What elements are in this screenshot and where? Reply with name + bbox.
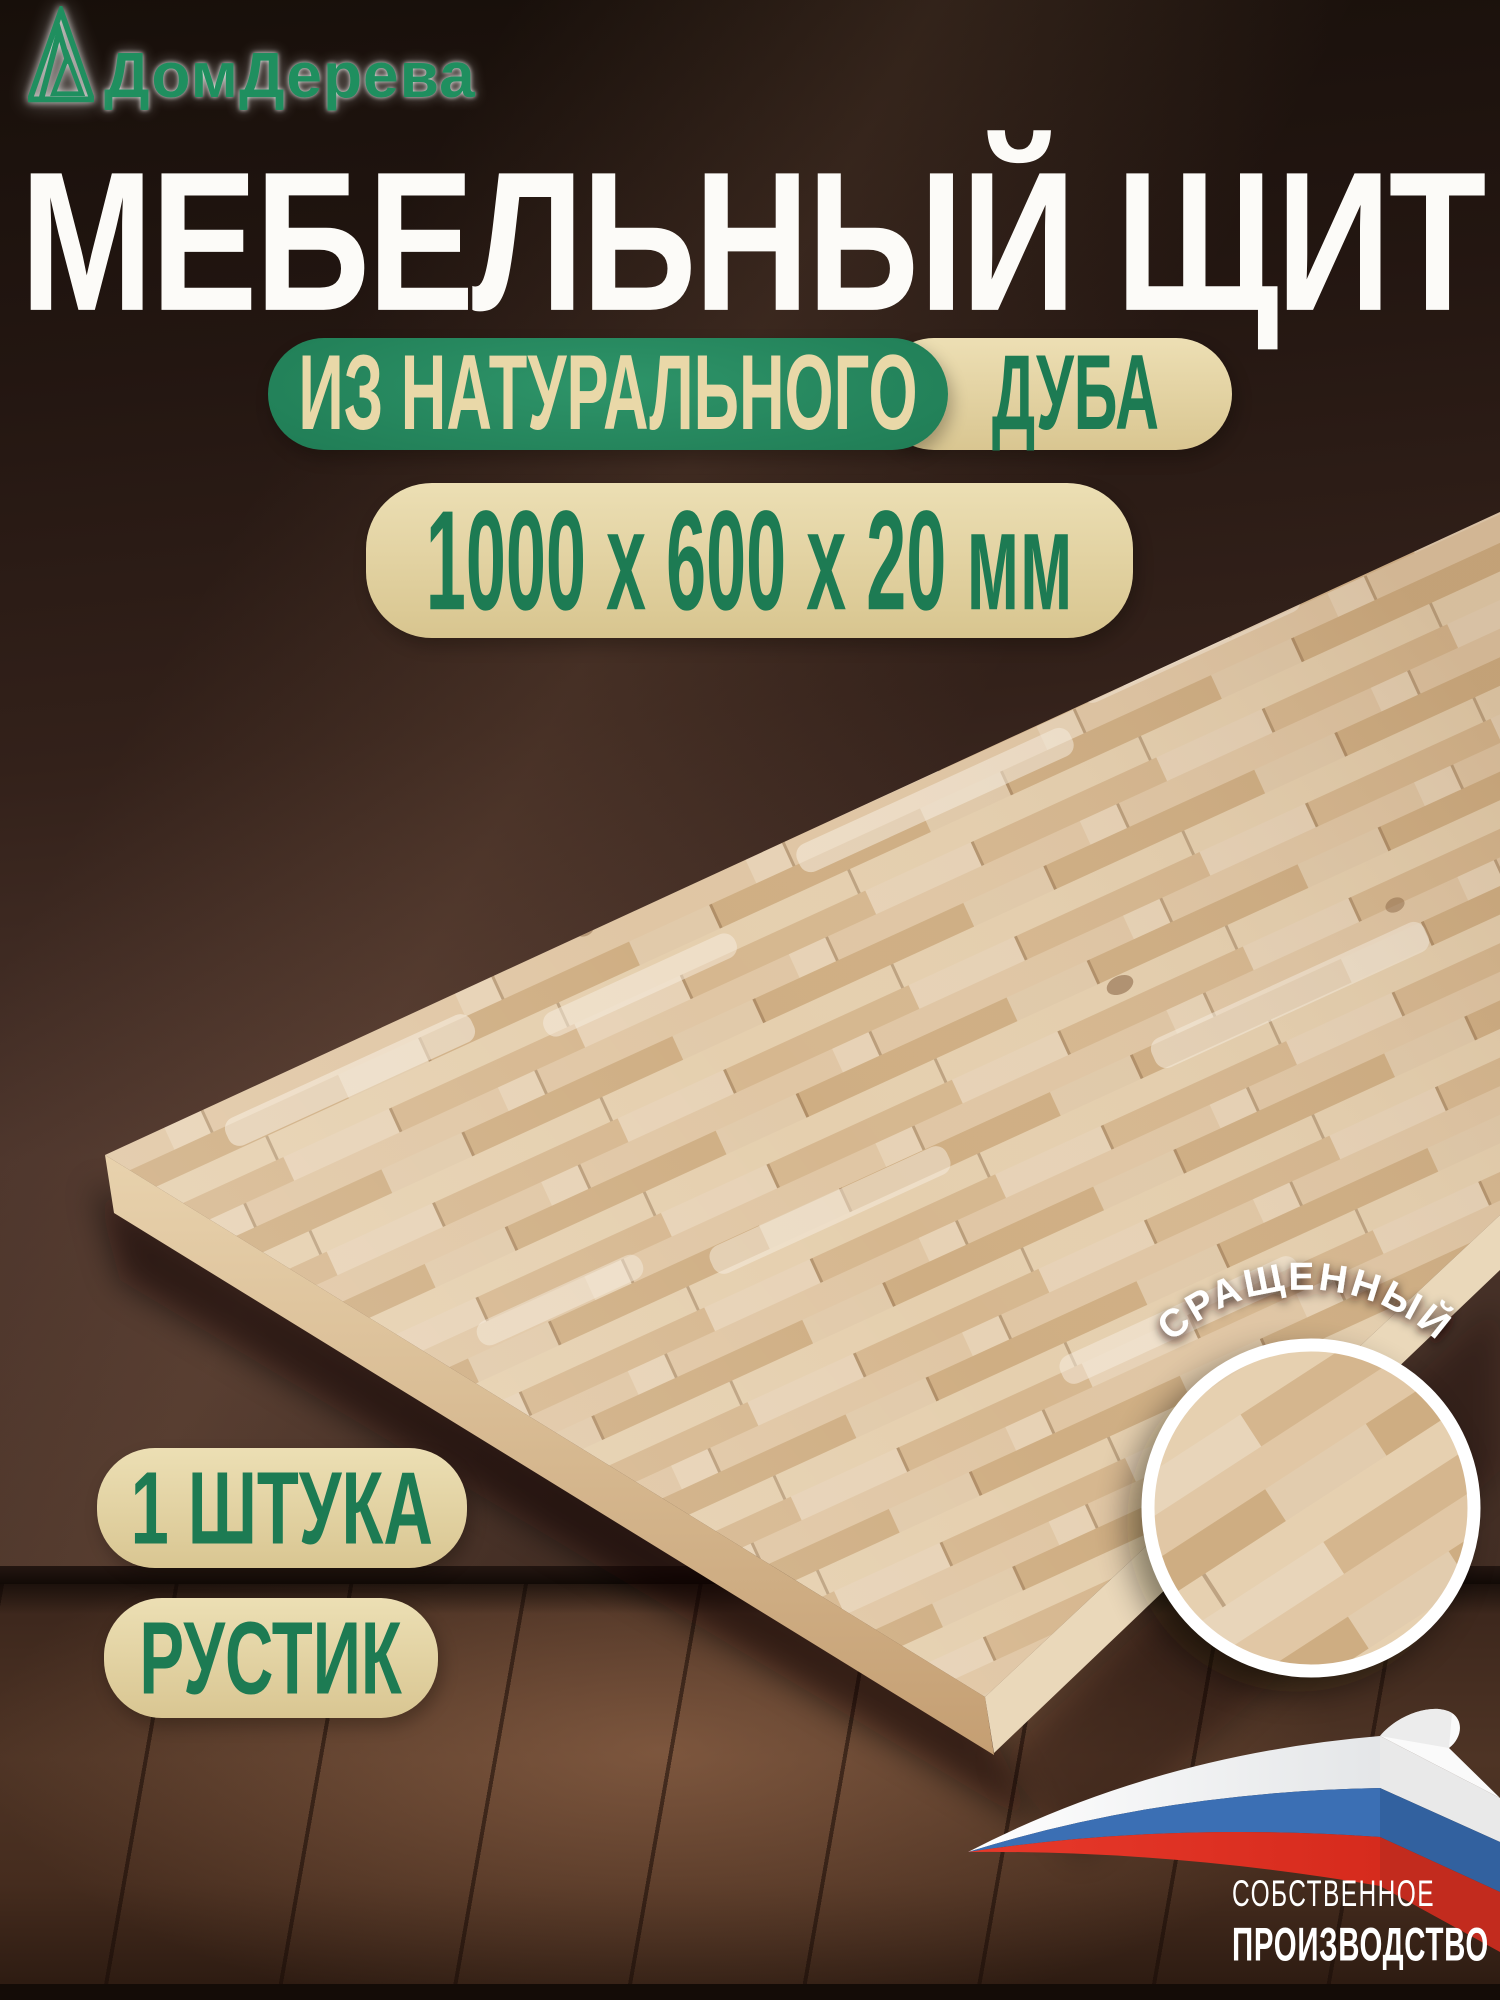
brand-logo-icon xyxy=(28,6,94,106)
badge-quantity-label: 1 ШТУКА xyxy=(131,1457,433,1560)
badge-natural-material: ИЗ НАТУРАЛЬНОГО xyxy=(268,338,948,450)
product-title: МЕБЕЛЬНЫЙ ЩИТ xyxy=(20,144,1484,342)
badge-grade-label: РУСТИК xyxy=(140,1607,403,1710)
badge-quantity: 1 ШТУКА xyxy=(97,1448,467,1568)
production-caption-line1: СОБСТВЕННОЕ xyxy=(1232,1876,1496,1915)
brand-logo: ДомДерева xyxy=(28,6,476,106)
badge-dimensions-label: 1000 х 600 х 20 мм xyxy=(426,490,1073,632)
brand-name: ДомДерева xyxy=(104,45,476,106)
product-banner: СРАЩЕННЫЙ ДомДерева МЕБЕЛЬНЫЙ ЩИТ ДУБА И… xyxy=(0,0,1500,2000)
badge-natural-material-label: ИЗ НАТУРАЛЬНОГО xyxy=(298,341,917,447)
production-caption-line2: ПРОИЗВОДСТВО xyxy=(1232,1920,1489,1969)
zoom-inset-circle xyxy=(1148,1345,1474,1671)
badge-grade: РУСТИК xyxy=(104,1598,438,1718)
production-caption: СОБСТВЕННОЕ ПРОИЗВОДСТВО xyxy=(1232,1876,1500,1964)
badge-dimensions: 1000 х 600 х 20 мм xyxy=(366,483,1133,638)
badge-wood-species-label: ДУБА xyxy=(992,341,1159,447)
